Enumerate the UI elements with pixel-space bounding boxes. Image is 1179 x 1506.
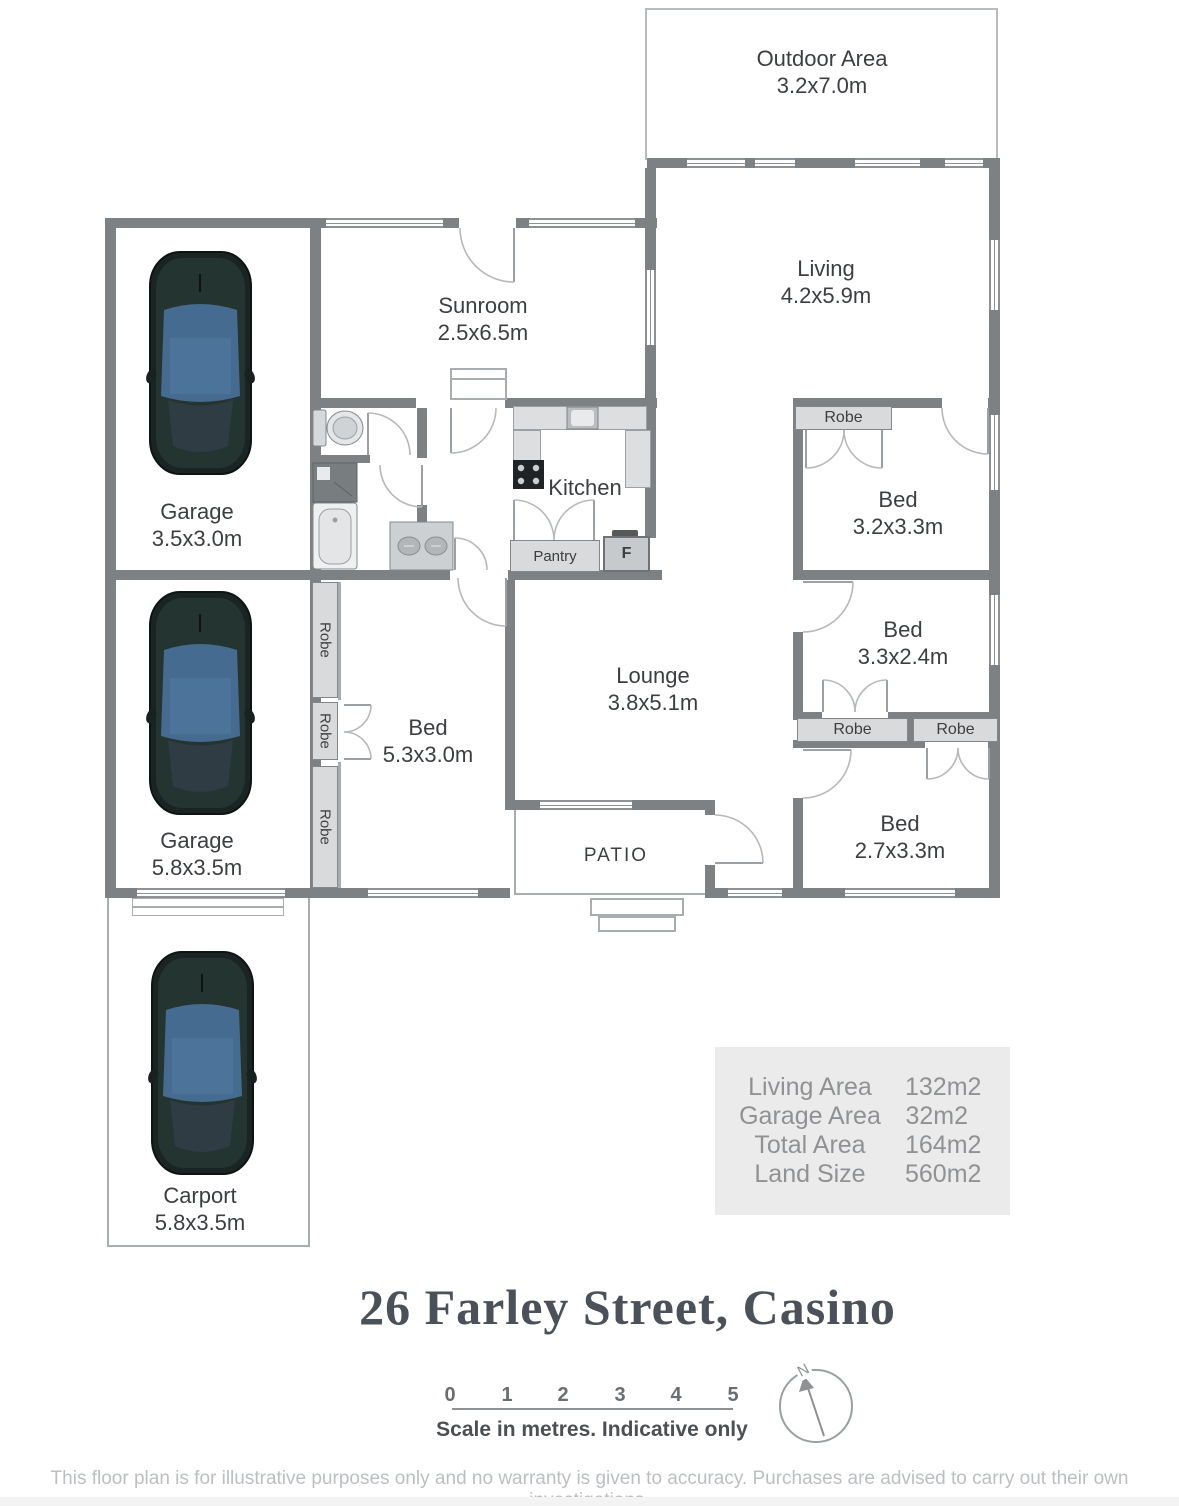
window [326,218,443,228]
wall [793,408,803,570]
door-opening [459,218,516,228]
room-label-garage1: Garage3.5x3.0m [152,498,243,552]
robe-bed2: Robe [797,718,908,742]
area-label: Living Area [715,1073,905,1102]
wall [705,865,715,898]
robe-label: Robe [317,713,334,749]
steps [450,368,507,380]
robe-label: Robe [317,622,334,658]
compass-icon [779,1369,853,1443]
fridge-icon: F [603,536,650,572]
window [687,158,745,168]
room-label-outdoor: Outdoor Area3.2x7.0m [757,45,888,99]
car-icon [146,592,255,814]
room-label-garage2: Garage5.8x3.5m [152,827,243,881]
scale-tick: 5 [727,1384,738,1407]
roller-door [132,907,284,916]
window [529,218,635,228]
robe-label: Robe [936,721,974,739]
scale-line [452,1408,733,1410]
room-label-lounge: Lounge3.8x5.1m [608,662,699,716]
carport-outline [107,898,109,1247]
window [368,888,478,898]
area-value: 560m2 [905,1160,1023,1189]
kitchen-counter [513,430,541,462]
window [540,800,632,810]
wall [793,798,803,898]
area-label: Garage Area [715,1102,905,1131]
stove-icon [513,460,544,489]
table-row: Living Area 132m2 [715,1073,1010,1102]
area-value: 132m2 [905,1073,1023,1102]
wall [505,570,515,810]
fridge-label: F [622,545,632,563]
door-opening [450,570,508,580]
kitchen-counter [625,430,651,488]
robe-bed4-1: Robe [312,582,338,698]
scale-caption: Scale in metres. Indicative only [436,1418,748,1442]
table-row: Total Area 164m2 [715,1131,1010,1160]
room-label-kitchen: Kitchen [548,474,621,501]
carport-outline [308,898,310,1247]
window [645,270,656,345]
room-label-patio: PATIO [584,845,648,867]
room-label-bed1: Bed3.2x3.3m [853,486,944,540]
room-label-living: Living4.2x5.9m [781,255,872,309]
bottom-strip [0,1497,1179,1506]
room-label-bed3: Bed2.7x3.3m [855,810,946,864]
scale-tick: 2 [557,1384,568,1407]
wall [105,228,116,898]
window [945,158,983,168]
scale-tick: 4 [670,1384,681,1407]
robe-bed1: Robe [795,406,892,430]
wall [338,762,341,888]
page-title: 26 Farley Street, Casino [38,1278,1179,1336]
kitchen-counter [513,406,647,430]
window [989,595,1000,665]
room-label-sunroom: Sunroom2.5x6.5m [438,292,529,346]
window [989,240,1000,310]
wall [793,632,803,712]
pantry-label: Pantry [533,548,576,565]
scale-tick: 0 [444,1384,455,1407]
wall [338,582,341,700]
table-row: Land Size 560m2 [715,1160,1010,1189]
wall [705,810,715,815]
carport-outline [107,1245,310,1247]
area-value: 32m2 [905,1102,1010,1131]
window [845,888,955,898]
robe-label: Robe [824,409,862,427]
scale-tick: 1 [501,1384,512,1407]
roller-door [132,898,284,907]
wall [105,570,321,580]
robe-bed4-3: Robe [312,766,338,888]
room-label-bed2: Bed3.3x2.4m [858,616,949,670]
table-row: Garage Area 32m2 [715,1102,1010,1131]
floorplan-page: Robe Robe Robe Robe Robe Robe Pantry F [0,0,1179,1506]
car-icon [146,252,255,474]
room-label-carport: Carport5.8x3.5m [155,1182,246,1236]
robe-label: Robe [833,721,871,739]
wall [417,505,427,570]
patio-steps [590,898,684,916]
pantry-cupboard: Pantry [510,540,600,572]
robe-bed4-2: Robe [312,702,338,760]
wall [310,455,370,463]
door-opening [942,398,988,408]
car-icon [148,952,257,1174]
area-summary-table: Living Area 132m2 Garage Area 32m2 Total… [715,1047,1010,1215]
room-label-bed4: Bed5.3x3.0m [383,714,474,768]
window [855,158,920,168]
patio-steps [598,916,676,932]
area-label: Land Size [715,1160,905,1189]
window [755,158,795,168]
area-label: Total Area [715,1131,905,1160]
area-value: 164m2 [905,1131,1023,1160]
window [989,415,1000,490]
scale-tick: 3 [614,1384,625,1407]
garage-door-opening [137,888,285,898]
robe-bed3: Robe [913,718,998,742]
robe-label: Robe [317,809,334,845]
window [728,888,782,898]
wall [793,570,1000,580]
